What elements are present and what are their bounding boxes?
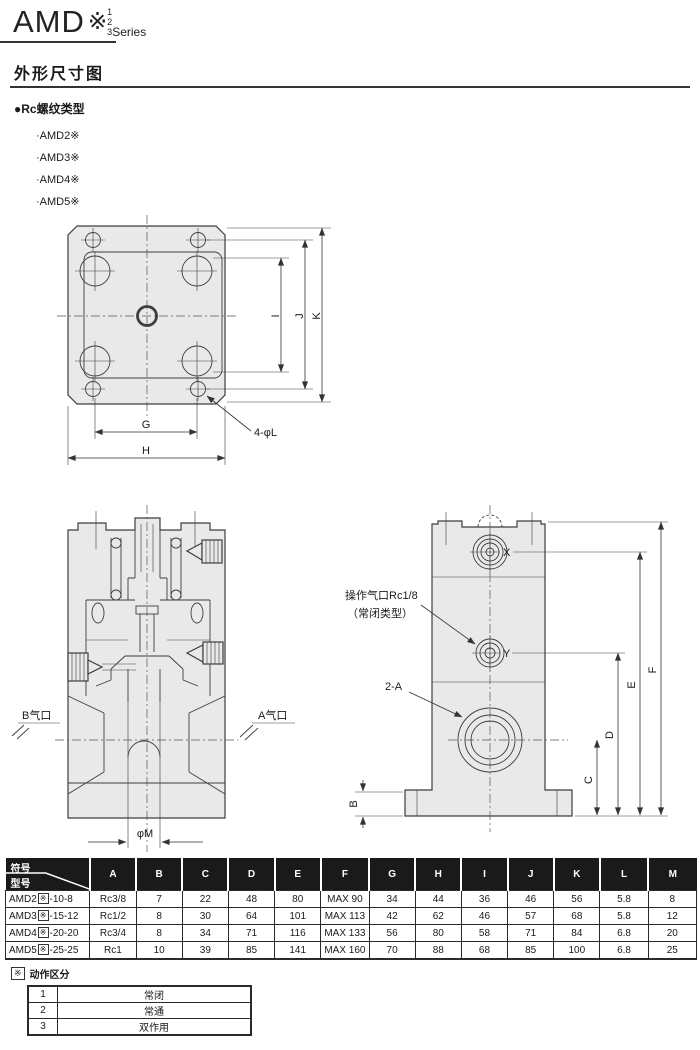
col-header-j: J: [508, 858, 554, 891]
corner-label-model: 型号: [11, 875, 31, 890]
action-row: 3 双作用: [28, 1019, 251, 1036]
reference-mark-box: ※: [38, 910, 49, 921]
dim-label-f: F: [647, 666, 659, 673]
col-header-d: D: [228, 858, 274, 891]
dim-label-j: J: [294, 313, 306, 319]
action-table: 1 常闭 2 常通 3 双作用: [27, 985, 252, 1036]
dim-label-phi-m: φM: [137, 828, 153, 840]
dim-label-b: B: [348, 800, 360, 807]
col-header-i: I: [461, 858, 507, 891]
action-row: 1 常闭: [28, 986, 251, 1003]
col-header-h: H: [415, 858, 461, 891]
col-header-b: B: [136, 858, 182, 891]
dim-label-c: C: [583, 776, 595, 784]
corner-label-symbol: 符号: [11, 860, 31, 875]
col-header-k: K: [554, 858, 600, 891]
model-cell: AMD2※-10-8: [6, 891, 90, 908]
dim-label-d: D: [604, 731, 616, 739]
table-row: AMD2※-10-8 Rc3/87 2248 80MAX 90 3444 364…: [6, 891, 697, 908]
dimension-table: 符号 型号 A B C D E F G H I J K L M AMD2※-10…: [5, 858, 697, 960]
pilot-port-label: 操作气口Rc1/8: [345, 588, 418, 602]
model-cell: AMD3※-15-12: [6, 908, 90, 925]
col-header-e: E: [275, 858, 321, 891]
model-cell: AMD5※-25-25: [6, 942, 90, 960]
action-classification: ※ 动作区分 1 常闭 2 常通 3 双作用: [11, 966, 252, 1036]
dim-label-i: I: [270, 314, 282, 317]
mount-holes-label: 4-φL: [254, 427, 277, 439]
table-row: AMD4※-20-20 Rc3/48 3471 116MAX 133 5680 …: [6, 925, 697, 942]
dim-label-k: K: [311, 312, 323, 320]
port-a-label: A气口: [258, 708, 287, 722]
col-header-f: F: [321, 858, 369, 891]
port-b-label: B气口: [22, 708, 51, 722]
action-row: 2 常通: [28, 1003, 251, 1019]
table-header-row: 符号 型号 A B C D E F G H I J K L M: [6, 858, 697, 891]
reference-mark-box: ※: [38, 927, 49, 938]
reference-mark-box: ※: [38, 893, 49, 904]
catalog-page: AMD ※ 1 2 3 Series 外形尺寸图 ●Rc螺纹类型 ·AMD2※ …: [0, 0, 700, 1050]
port-y-label: Y: [503, 648, 511, 660]
pilot-port-note: （常闭类型）: [347, 606, 413, 620]
table-row: AMD5※-25-25 Rc110 3985 141MAX 160 7088 6…: [6, 942, 697, 960]
action-title: 动作区分: [30, 966, 70, 981]
col-header-g: G: [369, 858, 415, 891]
dim-label-h: H: [142, 445, 150, 457]
corner-cell: 符号 型号: [6, 858, 90, 891]
table-row: AMD3※-15-12 Rc1/28 3064 101MAX 113 4262 …: [6, 908, 697, 925]
reference-mark-box: ※: [11, 967, 25, 980]
col-header-c: C: [182, 858, 228, 891]
col-header-m: M: [648, 858, 696, 891]
side-view-drawing: X Y 操作气口Rc1/8 （常闭类型） 2-A: [345, 505, 668, 832]
model-cell: AMD4※-20-20: [6, 925, 90, 942]
ports-count-label: 2-A: [385, 681, 403, 693]
col-header-l: L: [600, 858, 648, 891]
dim-label-g: G: [142, 419, 151, 431]
dim-label-e: E: [626, 681, 638, 688]
top-view-drawing: I J K G H 4-φL: [57, 215, 331, 465]
section-view-drawing: φM B气口 A气口: [12, 505, 295, 852]
reference-mark-box: ※: [38, 944, 49, 955]
col-header-a: A: [90, 858, 136, 891]
port-x-label: X: [503, 547, 511, 559]
action-heading: ※ 动作区分: [11, 966, 252, 981]
